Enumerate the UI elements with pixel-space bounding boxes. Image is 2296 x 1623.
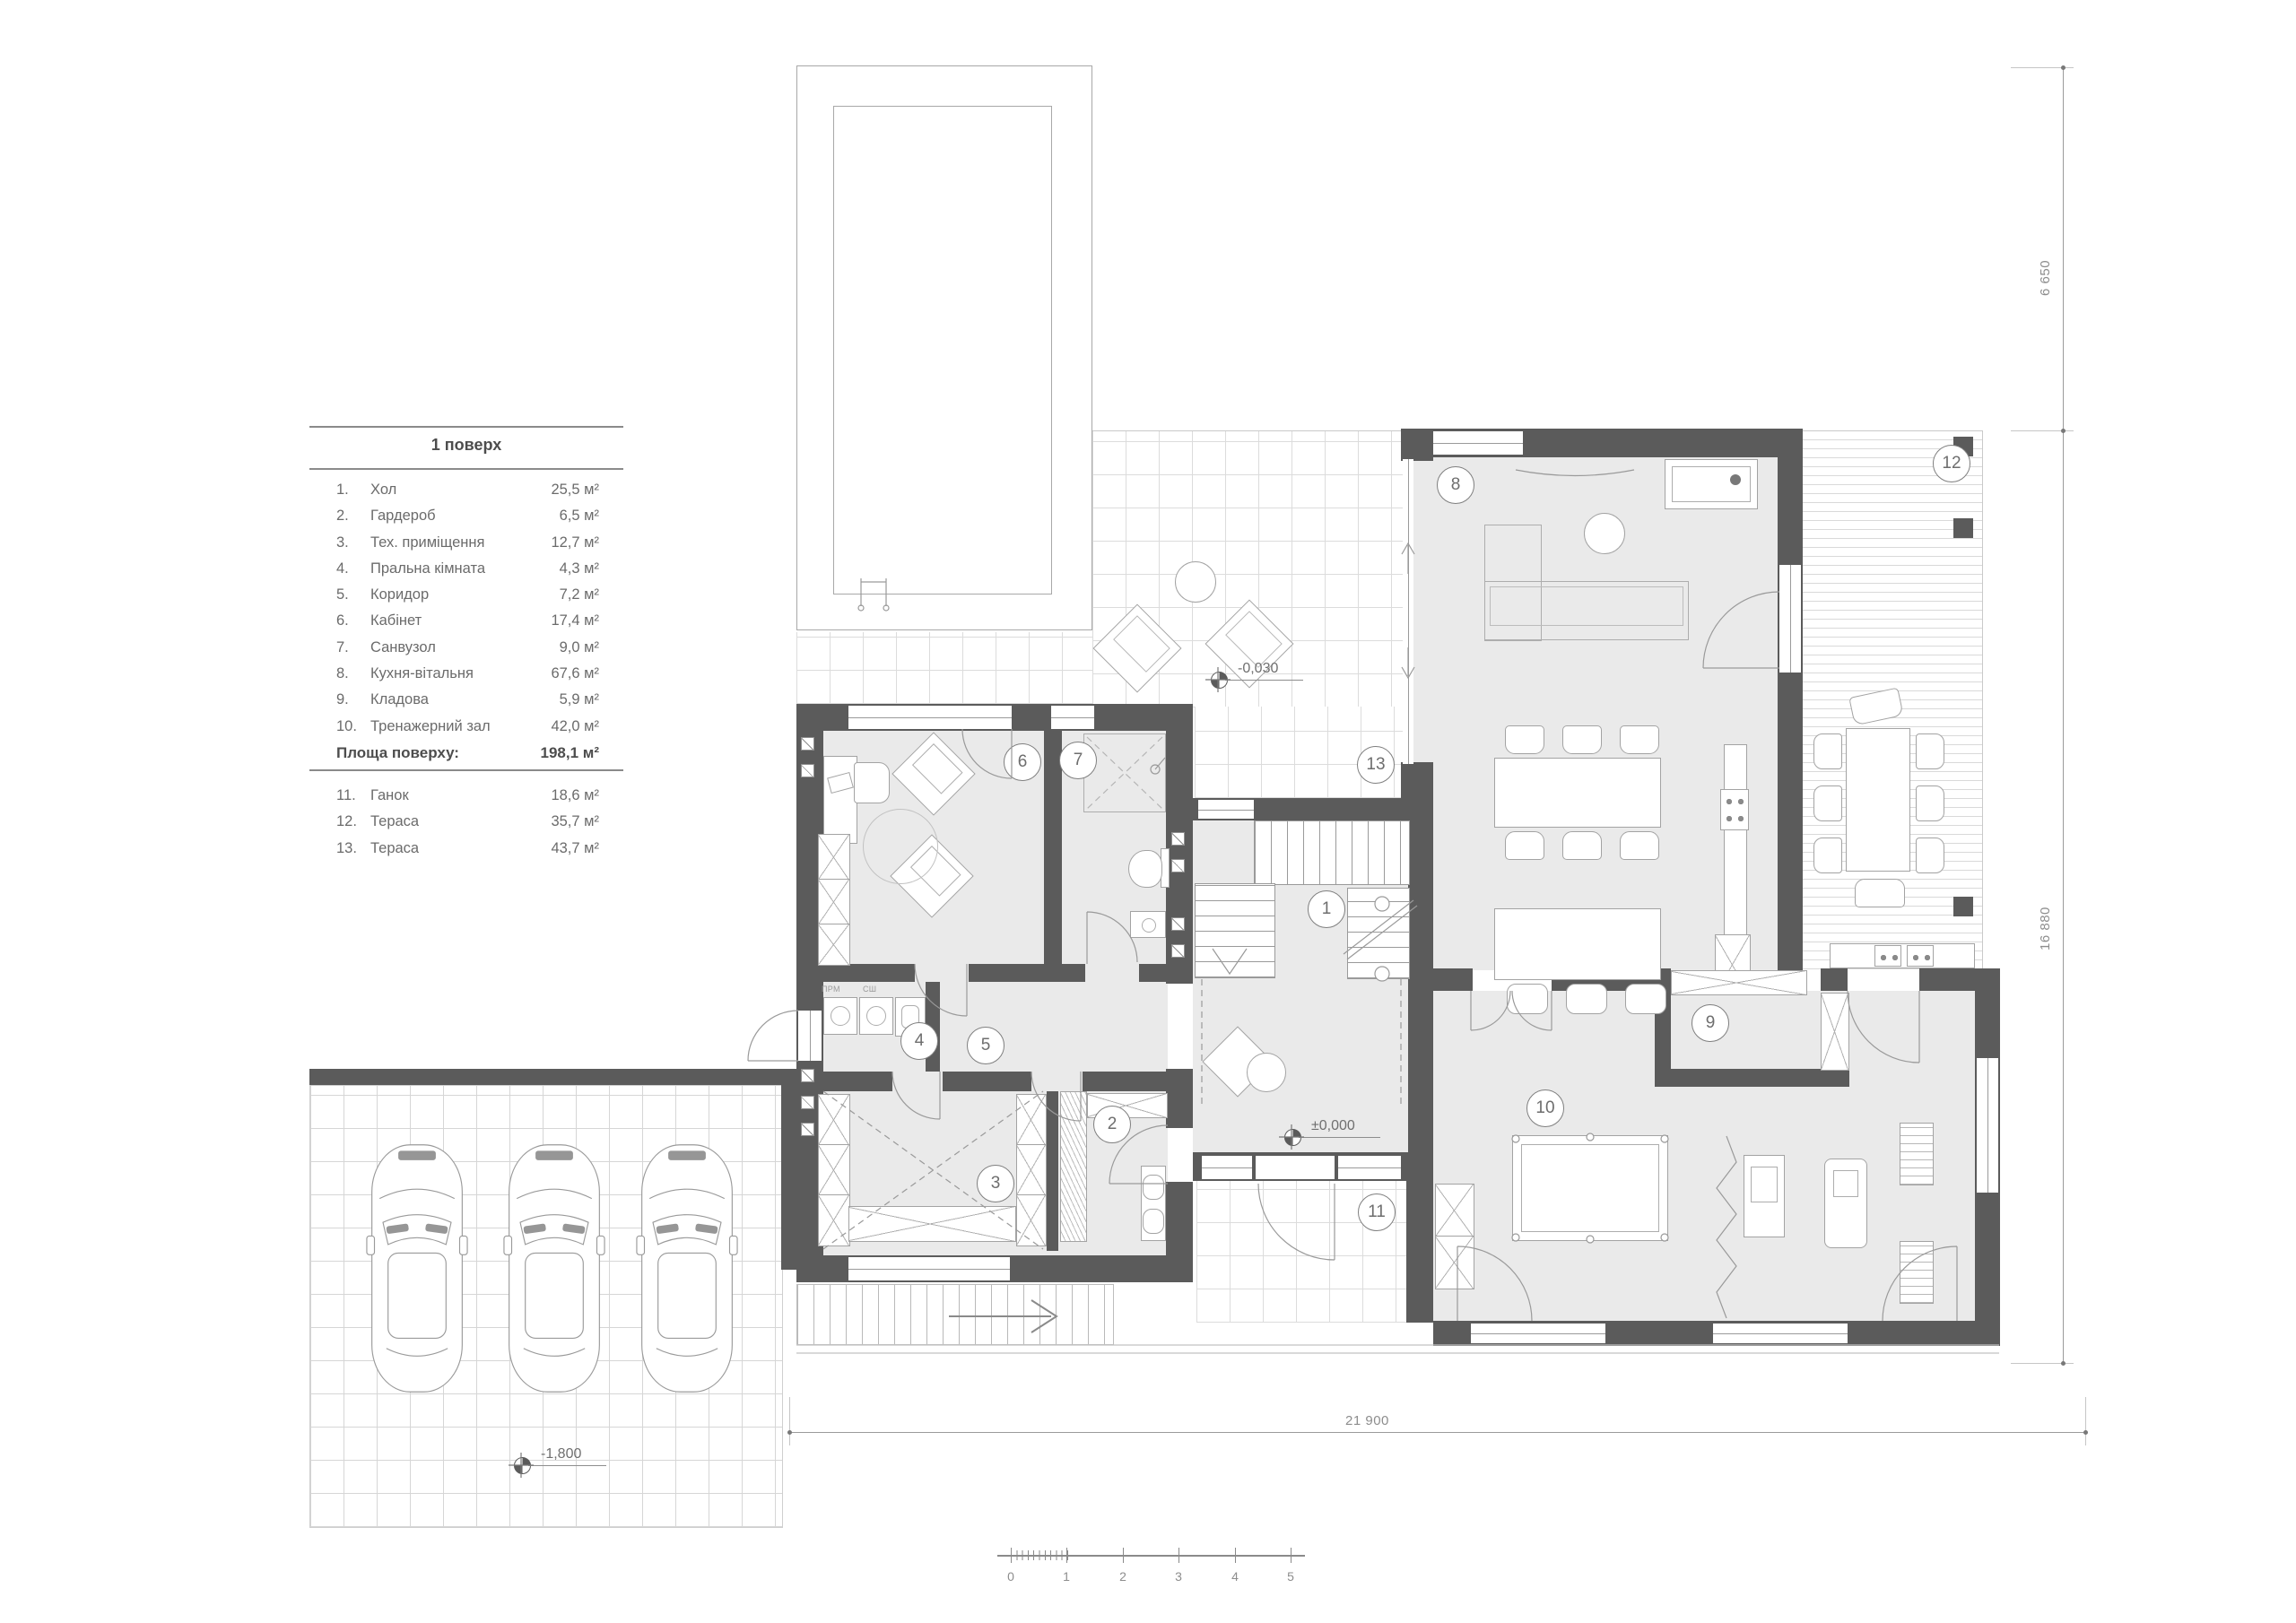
row-area: 6,5 м² <box>560 503 599 529</box>
bike-seat <box>1833 1170 1858 1197</box>
wall <box>1047 1091 1058 1251</box>
legend-row: 3.Тех. приміщення12,7 м² <box>336 530 599 556</box>
insulation-mark <box>801 1069 814 1082</box>
room-marker-4: 4 <box>900 1022 938 1060</box>
row-name: Хол <box>370 477 551 503</box>
gym-bench-machine <box>1744 1155 1785 1237</box>
retaining-wall <box>309 1069 796 1085</box>
legend-row: 9.Кладова5,9 м² <box>336 687 599 713</box>
wall <box>822 1072 892 1091</box>
coffee-table <box>1584 513 1625 554</box>
room-marker-2: 2 <box>1093 1106 1131 1143</box>
scale-label-1: 1 <box>1053 1569 1080 1584</box>
row-name: Кухня-вітальня <box>370 661 551 687</box>
scale-tick <box>1123 1548 1124 1563</box>
row-num: 1. <box>336 477 370 503</box>
sink <box>1130 911 1166 938</box>
wall <box>943 1072 1031 1091</box>
chair <box>1620 725 1659 754</box>
row-name: Кладова <box>370 687 560 713</box>
chair <box>1505 725 1544 754</box>
legend-title: 1 поверх <box>309 436 623 455</box>
row-area: 4,3 м² <box>560 556 599 582</box>
chair <box>1813 785 1842 821</box>
insulation-mark <box>1171 917 1185 931</box>
room-marker-11: 11 <box>1358 1193 1396 1231</box>
side-door-opening <box>798 1011 822 1061</box>
kitchen-island <box>1494 908 1661 980</box>
chair <box>1505 831 1544 860</box>
row-num: 9. <box>336 687 370 713</box>
chair <box>1562 725 1602 754</box>
dumbbell-rack <box>1900 1241 1934 1304</box>
glazed-wall <box>1403 459 1413 764</box>
total-area: 198,1 м² <box>459 744 599 762</box>
bench-pad <box>1751 1167 1778 1202</box>
bbq-grill <box>1874 945 1901 967</box>
legend-room-list: 1.Хол25,5 м² 2.Гардероб6,5 м² 3.Тех. при… <box>336 477 599 740</box>
entry-door-opening <box>1256 1156 1335 1179</box>
row-area: 7,2 м² <box>560 582 599 608</box>
window <box>1198 800 1254 819</box>
sink-basin <box>1142 918 1156 933</box>
wall <box>1778 429 1803 995</box>
row-name: Тераса <box>370 809 551 835</box>
walkway-edge-lines <box>796 1345 1999 1353</box>
wall <box>1083 1072 1166 1091</box>
dim-dot <box>787 1430 792 1435</box>
dryer-drum <box>866 1006 886 1026</box>
window <box>1202 1156 1252 1179</box>
gym-wardrobe <box>1435 1236 1474 1289</box>
chair <box>1916 785 1944 821</box>
swimming-pool <box>833 106 1052 595</box>
insulation-mark <box>801 764 814 777</box>
row-num: 10. <box>336 714 370 740</box>
scale-label-5: 5 <box>1277 1569 1304 1584</box>
cabinet <box>1016 1094 1047 1146</box>
row-name: Санвузол <box>370 635 560 661</box>
legend-row: 5.Коридор7,2 м² <box>336 582 599 608</box>
dim-dot <box>2061 65 2066 70</box>
window <box>848 1257 1010 1280</box>
row-area: 67,6 м² <box>551 661 599 687</box>
extension-line <box>2085 1397 2086 1445</box>
dim-dot <box>2083 1430 2088 1435</box>
sofa-cushion-line <box>1490 586 1683 626</box>
entrance-walkway-steps <box>796 1284 1114 1345</box>
round-rug <box>863 809 938 884</box>
room-marker-3: 3 <box>977 1165 1014 1202</box>
fireplace-inner <box>1672 466 1751 502</box>
row-name: Тех. приміщення <box>370 530 551 556</box>
total-label: Площа поверху: <box>336 744 459 762</box>
row-area: 42,0 м² <box>551 714 599 740</box>
row-name: Тераса <box>370 836 551 862</box>
insulation-mark <box>1171 832 1185 846</box>
window <box>1471 1324 1605 1343</box>
row-num: 7. <box>336 635 370 661</box>
chair <box>1916 733 1944 769</box>
dim-dot <box>2061 429 2066 433</box>
terrace-post <box>1953 897 1973 916</box>
legend-row: 4.Пральна кімната4,3 м² <box>336 556 599 582</box>
dumbbell-rack <box>1900 1123 1934 1185</box>
chair <box>1916 838 1944 873</box>
legend-rule-mid <box>309 468 623 470</box>
billiard-table <box>1512 1135 1668 1241</box>
fireplace <box>1665 459 1758 509</box>
row-area: 18,6 м² <box>551 783 599 809</box>
storage-wardrobe <box>1671 970 1807 995</box>
room-marker-1: 1 <box>1308 890 1345 928</box>
room-marker-9: 9 <box>1692 1004 1729 1042</box>
wall <box>1401 762 1433 798</box>
shower <box>1083 733 1166 812</box>
room-marker-8: 8 <box>1437 466 1474 504</box>
wall <box>1401 429 1433 461</box>
row-num: 5. <box>336 582 370 608</box>
dryer-machine <box>859 997 893 1035</box>
legend-rule-top <box>309 426 623 428</box>
row-num: 3. <box>336 530 370 556</box>
dim-value-top: 6 650 <box>2038 206 2053 296</box>
dim-value-bottom: 21 900 <box>1345 1413 1389 1428</box>
scale-tick <box>1066 1548 1067 1563</box>
scale-tick <box>1011 1548 1012 1563</box>
hall-ottoman <box>1247 1053 1286 1092</box>
dim-value-main: 16 880 <box>2038 852 2053 950</box>
row-num: 6. <box>336 608 370 634</box>
scale-label-3: 3 <box>1165 1569 1192 1584</box>
toilet <box>1128 850 1162 888</box>
legend-row: 10.Тренажерний зал42,0 м² <box>336 714 599 740</box>
chair <box>1620 831 1659 860</box>
floor-plan-canvas: 1 поверх 1.Хол25,5 м² 2.Гардероб6,5 м² 3… <box>0 0 2296 1623</box>
terrace-post <box>1953 518 1973 538</box>
row-name: Коридор <box>370 582 560 608</box>
window <box>1977 1058 1998 1193</box>
wall <box>1408 973 1433 1152</box>
terrace-13-tiles-lower <box>796 632 1092 704</box>
row-area: 25,5 м² <box>551 477 599 503</box>
dimension-line-vertical <box>2063 67 2064 1363</box>
row-num: 11. <box>336 783 370 809</box>
wall <box>1166 1182 1193 1282</box>
scale-tick <box>1235 1548 1236 1563</box>
level-ground: ±0,000 <box>1299 1117 1380 1138</box>
washer-label: ПРМ <box>822 985 840 994</box>
legend-rule-bottom <box>309 769 623 771</box>
scale-tick <box>1291 1548 1291 1563</box>
row-name: Кабінет <box>370 608 551 634</box>
room-marker-7: 7 <box>1059 742 1097 779</box>
bar-stool <box>1566 984 1607 1014</box>
wall <box>969 964 1085 982</box>
legend-total-row: Площа поверху: 198,1 м² <box>336 744 599 762</box>
window <box>1338 1156 1401 1179</box>
stairs-right-flight <box>1347 888 1410 979</box>
window <box>1713 1324 1848 1343</box>
insulation-mark <box>1171 859 1185 872</box>
seat <box>1143 1209 1164 1234</box>
wall <box>1406 1152 1433 1323</box>
bar-stool <box>1507 984 1548 1014</box>
dryer-label: СШ <box>863 985 876 994</box>
wardrobe <box>818 834 850 881</box>
insulation-mark <box>801 737 814 751</box>
row-num: 12. <box>336 809 370 835</box>
fireplace-flue <box>1730 474 1741 485</box>
insulation-mark <box>801 1096 814 1109</box>
dining-table <box>1494 758 1661 828</box>
row-num: 8. <box>336 661 370 687</box>
row-area: 35,7 м² <box>551 809 599 835</box>
row-name: Тренажерний зал <box>370 714 551 740</box>
wall <box>1166 1069 1193 1128</box>
row-name: Пральна кімната <box>370 556 560 582</box>
dimension-line-bottom <box>789 1432 2085 1433</box>
level-parking: -1,800 <box>528 1445 606 1466</box>
legend-row: 7.Санвузол9,0 м² <box>336 635 599 661</box>
insulation-mark <box>801 1123 814 1136</box>
kitchen-counter <box>1724 744 1747 967</box>
legend-row: 1.Хол25,5 м² <box>336 477 599 503</box>
scale-label-4: 4 <box>1222 1569 1248 1584</box>
row-area: 9,0 м² <box>560 635 599 661</box>
dim-dot <box>2061 1361 2066 1366</box>
row-num: 4. <box>336 556 370 582</box>
extension-line <box>789 1397 790 1445</box>
row-num: 13. <box>336 836 370 862</box>
wardrobe-rack <box>1060 1091 1087 1242</box>
desk <box>823 756 857 844</box>
insulation-mark <box>1171 944 1185 958</box>
legend-row: 8.Кухня-вітальня67,6 м² <box>336 661 599 687</box>
outdoor-side-table <box>1175 561 1216 603</box>
chair <box>1813 838 1842 873</box>
wardrobe <box>818 924 850 966</box>
legend-row: 12.Тераса35,7 м² <box>336 809 599 835</box>
window <box>1051 706 1094 729</box>
legend-row: 13.Тераса43,7 м² <box>336 836 599 862</box>
wall <box>1919 968 1975 991</box>
legend-row: 2.Гардероб6,5 м² <box>336 503 599 529</box>
storage-closet <box>848 1206 1016 1242</box>
row-area: 17,4 м² <box>551 608 599 634</box>
room-marker-10: 10 <box>1526 1089 1564 1127</box>
scale-minor-ticks <box>1011 1550 1068 1560</box>
chair <box>1562 831 1602 860</box>
level-terrace: -0,030 <box>1225 660 1303 681</box>
room-marker-5: 5 <box>967 1027 1004 1064</box>
row-name: Ганок <box>370 783 551 809</box>
storage-wardrobe <box>1821 993 1849 1071</box>
window <box>848 706 1012 729</box>
room-marker-13: 13 <box>1357 746 1395 784</box>
legend-row: 6.Кабінет17,4 м² <box>336 608 599 634</box>
bbq-grill <box>1907 945 1934 967</box>
outdoor-kitchen-counter <box>1830 943 1975 968</box>
stairs-left-flight <box>1195 883 1275 978</box>
washing-machine <box>823 997 857 1035</box>
wall <box>1655 1069 1849 1087</box>
wardrobe <box>818 879 850 925</box>
chair <box>1813 733 1842 769</box>
wall <box>1433 968 1473 991</box>
scale-label-0: 0 <box>997 1569 1024 1584</box>
wall <box>1821 968 1848 991</box>
row-num: 2. <box>336 503 370 529</box>
cabinet <box>1016 1194 1047 1246</box>
terrace-door-opening <box>1779 565 1801 673</box>
gym-wardrobe <box>1435 1184 1474 1237</box>
room-marker-12: 12 <box>1933 445 1970 482</box>
cabinet <box>818 1194 850 1246</box>
bar-stool <box>1625 984 1666 1014</box>
cabinet <box>818 1094 850 1146</box>
row-area: 5,9 м² <box>560 687 599 713</box>
billiard-felt <box>1521 1144 1659 1232</box>
stairs-upper-flight <box>1254 820 1410 885</box>
desk-chair <box>854 762 890 803</box>
scale-tick <box>1178 1548 1179 1563</box>
legend-row: 11.Ганок18,6 м² <box>336 783 599 809</box>
cooktop <box>1720 789 1749 830</box>
wall <box>1139 964 1168 982</box>
outdoor-dining-table <box>1846 728 1910 872</box>
legend-outdoor-list: 11.Ганок18,6 м² 12.Тераса35,7 м² 13.Тера… <box>336 783 599 862</box>
room-marker-6: 6 <box>1004 743 1041 781</box>
scale-label-2: 2 <box>1109 1569 1136 1584</box>
cabinet <box>818 1144 850 1196</box>
wall <box>822 964 915 982</box>
window <box>1433 431 1523 455</box>
exercise-bike <box>1824 1159 1867 1248</box>
seat <box>1143 1175 1164 1200</box>
row-area: 12,7 м² <box>551 530 599 556</box>
washer-drum <box>831 1006 850 1026</box>
row-name: Гардероб <box>370 503 560 529</box>
chair <box>1855 879 1905 907</box>
cabinet <box>1016 1144 1047 1196</box>
row-area: 43,7 м² <box>551 836 599 862</box>
